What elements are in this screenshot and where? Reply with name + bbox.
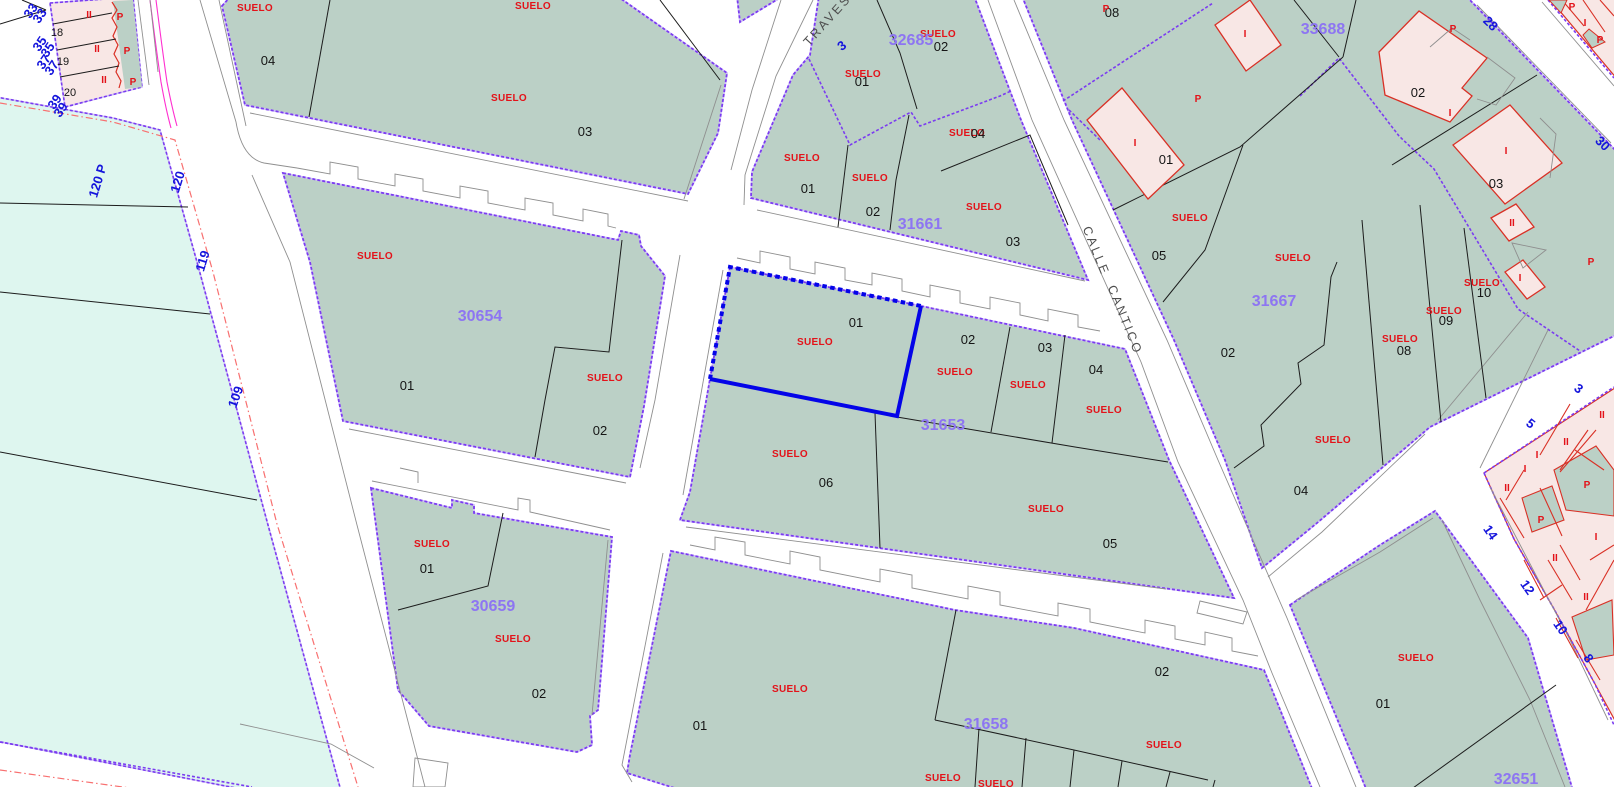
svg-text:SUELO: SUELO: [515, 1, 551, 12]
svg-text:08: 08: [1397, 343, 1411, 358]
svg-text:I: I: [1584, 18, 1587, 29]
svg-text:SUELO: SUELO: [491, 93, 527, 104]
svg-text:18: 18: [51, 27, 63, 39]
svg-text:II: II: [1583, 592, 1589, 603]
svg-text:SUELO: SUELO: [1028, 504, 1064, 515]
svg-text:I: I: [1524, 464, 1527, 475]
svg-text:P: P: [1588, 257, 1595, 268]
svg-text:SUELO: SUELO: [495, 634, 531, 645]
svg-text:I: I: [1519, 273, 1522, 284]
svg-text:P: P: [130, 77, 137, 88]
svg-text:P: P: [1569, 2, 1576, 13]
svg-text:03: 03: [1489, 176, 1503, 191]
svg-text:II: II: [94, 44, 100, 55]
svg-text:SUELO: SUELO: [772, 684, 808, 695]
svg-text:I: I: [1449, 108, 1452, 119]
svg-text:02: 02: [1411, 85, 1425, 100]
svg-text:01: 01: [420, 561, 434, 576]
svg-text:P: P: [1597, 35, 1604, 46]
svg-text:II: II: [1563, 437, 1569, 448]
svg-text:03: 03: [1006, 234, 1020, 249]
svg-text:SUELO: SUELO: [1146, 740, 1182, 751]
svg-text:32651: 32651: [1494, 771, 1539, 787]
svg-text:I: I: [1134, 138, 1137, 149]
svg-text:SUELO: SUELO: [1010, 380, 1046, 391]
svg-text:04: 04: [1294, 483, 1308, 498]
svg-text:SUELO: SUELO: [1275, 253, 1311, 264]
svg-text:30659: 30659: [471, 598, 516, 615]
svg-text:31658: 31658: [964, 716, 1009, 733]
svg-text:P: P: [124, 46, 131, 57]
svg-text:02: 02: [934, 39, 948, 54]
svg-text:33688: 33688: [1301, 21, 1346, 38]
svg-text:31653: 31653: [921, 417, 966, 434]
svg-text:05: 05: [1152, 248, 1166, 263]
svg-text:I: I: [1595, 532, 1598, 543]
svg-text:01: 01: [1159, 152, 1173, 167]
svg-text:SUELO: SUELO: [237, 3, 273, 14]
svg-text:SUELO: SUELO: [784, 153, 820, 164]
svg-text:SUELO: SUELO: [925, 773, 961, 784]
svg-text:20: 20: [64, 87, 76, 99]
svg-text:P: P: [1450, 24, 1457, 35]
svg-text:I: I: [1505, 146, 1508, 157]
svg-text:04: 04: [1089, 362, 1103, 377]
svg-text:SUELO: SUELO: [772, 449, 808, 460]
svg-text:31667: 31667: [1252, 293, 1297, 310]
svg-text:P: P: [1195, 94, 1202, 105]
svg-text:II: II: [86, 10, 92, 21]
svg-text:05: 05: [1103, 536, 1117, 551]
svg-text:I: I: [1536, 450, 1539, 461]
svg-text:04: 04: [971, 126, 985, 141]
svg-text:30654: 30654: [458, 308, 503, 325]
svg-text:09: 09: [1439, 313, 1453, 328]
svg-text:02: 02: [593, 423, 607, 438]
svg-text:06: 06: [819, 475, 833, 490]
svg-text:P: P: [1538, 515, 1545, 526]
svg-text:SUELO: SUELO: [937, 367, 973, 378]
svg-text:II: II: [1599, 410, 1605, 421]
svg-text:01: 01: [801, 181, 815, 196]
svg-text:II: II: [1552, 553, 1558, 564]
svg-text:02: 02: [532, 686, 546, 701]
svg-text:SUELO: SUELO: [797, 337, 833, 348]
svg-text:P: P: [117, 12, 124, 23]
svg-text:SUELO: SUELO: [852, 173, 888, 184]
svg-text:10: 10: [1477, 285, 1491, 300]
svg-text:02: 02: [866, 204, 880, 219]
svg-text:SUELO: SUELO: [357, 251, 393, 262]
svg-text:SUELO: SUELO: [1086, 405, 1122, 416]
svg-text:03: 03: [1038, 340, 1052, 355]
svg-text:SUELO: SUELO: [1315, 435, 1351, 446]
svg-text:SUELO: SUELO: [414, 539, 450, 550]
svg-text:01: 01: [855, 74, 869, 89]
svg-text:P: P: [1103, 4, 1110, 15]
svg-text:SUELO: SUELO: [978, 779, 1014, 787]
svg-text:SUELO: SUELO: [587, 373, 623, 384]
svg-text:II: II: [1509, 218, 1515, 229]
svg-text:SUELO: SUELO: [966, 202, 1002, 213]
svg-text:03: 03: [578, 124, 592, 139]
svg-text:I: I: [1244, 29, 1247, 40]
svg-text:II: II: [1504, 483, 1510, 494]
svg-text:02: 02: [961, 332, 975, 347]
svg-text:31661: 31661: [898, 216, 943, 233]
svg-text:01: 01: [849, 315, 863, 330]
svg-text:SUELO: SUELO: [1172, 213, 1208, 224]
svg-text:SUELO: SUELO: [1398, 653, 1434, 664]
svg-text:II: II: [101, 75, 107, 86]
svg-text:02: 02: [1221, 345, 1235, 360]
svg-text:P: P: [1584, 480, 1591, 491]
svg-text:32685: 32685: [889, 32, 934, 49]
svg-text:02: 02: [1155, 664, 1169, 679]
svg-text:01: 01: [400, 378, 414, 393]
svg-text:01: 01: [693, 718, 707, 733]
svg-text:04: 04: [261, 53, 275, 68]
svg-text:01: 01: [1376, 696, 1390, 711]
